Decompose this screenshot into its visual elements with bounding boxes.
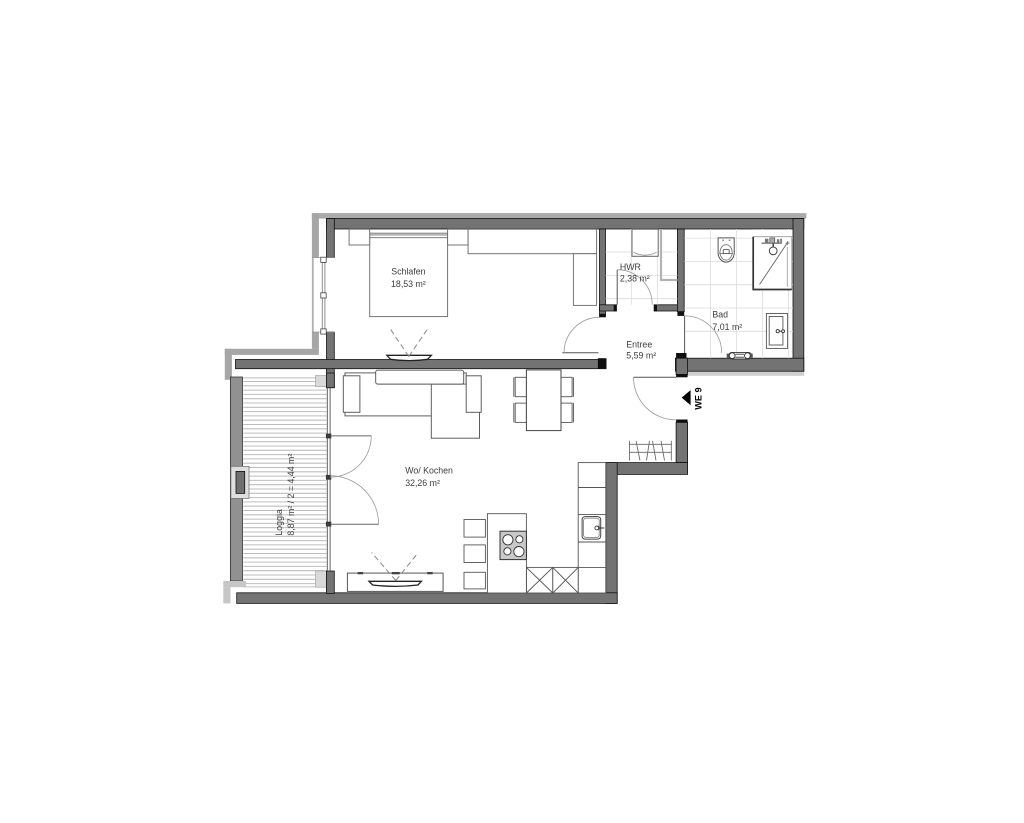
svg-text:HWR: HWR [620, 262, 641, 272]
svg-text:18,53 m²: 18,53 m² [391, 279, 426, 289]
svg-text:Schlafen: Schlafen [391, 267, 425, 277]
svg-text:7,01 m²: 7,01 m² [712, 322, 742, 332]
svg-text:Entree: Entree [626, 339, 652, 349]
svg-text:WE 9: WE 9 [694, 387, 704, 409]
svg-text:8,87 m² / 2 = 4,44 m²: 8,87 m² / 2 = 4,44 m² [286, 454, 296, 536]
svg-text:Bad: Bad [712, 309, 728, 319]
svg-text:32,26 m²: 32,26 m² [405, 478, 440, 488]
svg-text:2,38 m²: 2,38 m² [620, 273, 650, 283]
svg-text:5,59 m²: 5,59 m² [626, 351, 656, 361]
svg-text:Loggia: Loggia [274, 509, 284, 536]
svg-text:Wo/ Kochen: Wo/ Kochen [405, 466, 453, 476]
